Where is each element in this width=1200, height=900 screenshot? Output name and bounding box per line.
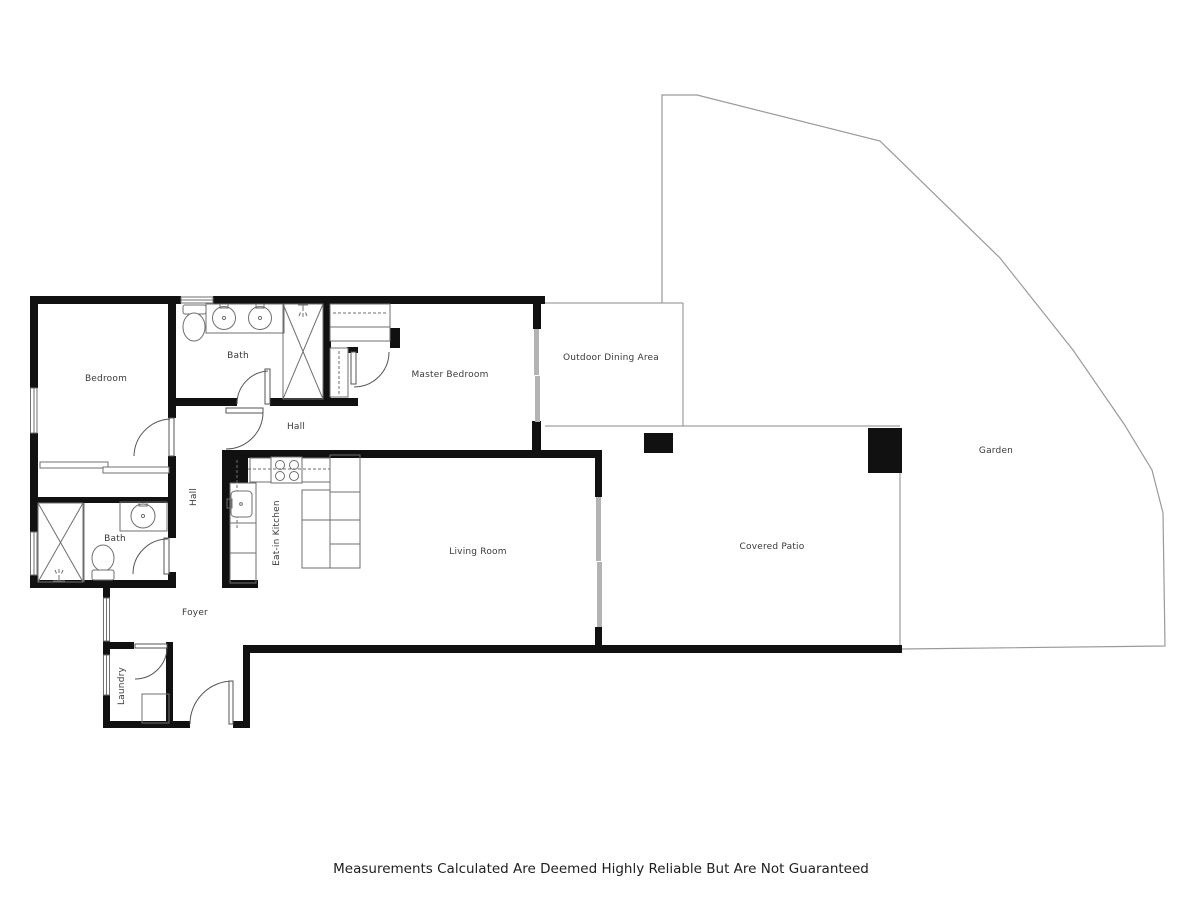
wall-bottom-main (243, 645, 902, 653)
wall-master-east-upper (533, 296, 541, 329)
sink-icon (249, 304, 272, 330)
master-slider-panel-1 (534, 329, 539, 375)
wall-top-right (213, 296, 545, 304)
patio-pillar-small (644, 433, 673, 453)
room-label-bedroom: Bedroom (85, 374, 127, 384)
room-label-master-bedroom: Master Bedroom (411, 370, 488, 380)
disclaimer-text: Measurements Calculated Are Deemed Highl… (333, 861, 869, 877)
double-vanity (206, 304, 284, 333)
kitchen-sink-icon (227, 491, 252, 517)
bath-top-window (181, 297, 213, 303)
site-outline (545, 95, 1165, 649)
floor-plan-canvas: Bedroom Bath Hall Master Bedroom Outdoor… (0, 0, 1200, 900)
sliding-doors (534, 329, 602, 627)
wall-divider-1 (168, 296, 176, 406)
washer-icon (142, 694, 169, 723)
wall-kitchen-corner (222, 450, 248, 483)
room-label-living-room: Living Room (449, 547, 506, 557)
bath-lower-door (133, 538, 169, 574)
sink-icon (131, 502, 155, 528)
master-slider-panel-2 (535, 376, 540, 422)
kitchen-counter-left (227, 483, 256, 583)
stove-icon (271, 457, 302, 483)
room-label-hall-side: Hall (189, 488, 199, 506)
vanity (120, 502, 167, 531)
master-entry-closet (330, 348, 348, 397)
room-label-foyer: Foyer (182, 608, 208, 618)
toilet-icon (183, 305, 206, 341)
sink-icon (213, 304, 236, 330)
wall-master-east-corner (532, 421, 541, 458)
room-label-hall-top: Hall (287, 422, 305, 432)
hall-door (226, 408, 263, 449)
bath-top-door (237, 369, 270, 404)
bath-lower-window (31, 532, 38, 575)
walls (30, 296, 902, 728)
wall-bath2-bottom (30, 580, 176, 588)
master-wardrobe (330, 304, 390, 341)
living-slider-panel-2 (597, 562, 602, 627)
floor-plan-page: Bedroom Bath Hall Master Bedroom Outdoor… (0, 0, 1200, 900)
bedroom-door (134, 418, 174, 456)
toilet-icon (92, 545, 114, 580)
room-label-laundry: Laundry (117, 666, 127, 705)
laundry-window (104, 655, 110, 695)
wall-foyer-west-1 (103, 588, 110, 598)
shower-icon (38, 503, 83, 582)
bedroom-closet-sliding-doors (40, 462, 169, 473)
shower-icon (283, 304, 323, 399)
wall-wardrobe-stub (390, 328, 400, 348)
kitchen-island (302, 455, 360, 568)
closets (40, 304, 390, 473)
foyer-window (104, 598, 110, 641)
wall-living-east-lower (595, 627, 602, 653)
master-bedroom-door (351, 352, 389, 387)
wall-laundry-top (103, 642, 134, 649)
bath-top-fixtures (183, 304, 323, 399)
wall-front-1 (103, 721, 190, 728)
patio-pillar-large (868, 428, 902, 473)
front-door (190, 681, 233, 724)
laundry-door (135, 644, 167, 679)
windows (31, 297, 214, 695)
wall-foyer-step (243, 645, 250, 728)
room-label-bath-lower: Bath (104, 534, 126, 544)
room-label-covered-patio: Covered Patio (740, 542, 805, 552)
room-label-garden: Garden (979, 446, 1013, 456)
wall-kitchen-bottom (222, 580, 258, 588)
room-label-outdoor-dining: Outdoor Dining Area (563, 353, 659, 363)
room-label-eat-in-kitchen: Eat-in Kitchen (272, 500, 282, 566)
wall-living-east-upper (595, 450, 602, 497)
wall-hall-north-1 (168, 398, 237, 406)
wall-closet-stub-bottom (347, 398, 358, 406)
wall-west-2 (30, 433, 38, 532)
bath-lower-fixtures (38, 502, 167, 582)
bedroom-window (31, 388, 38, 433)
room-label-bath-top: Bath (227, 351, 249, 361)
wall-top-left (30, 296, 181, 304)
garden-boundary (662, 95, 1165, 649)
wall-divider-2 (168, 406, 176, 418)
living-slider-panel-1 (596, 497, 601, 561)
laundry-fixtures (142, 694, 169, 723)
wall-west-1 (30, 296, 38, 388)
